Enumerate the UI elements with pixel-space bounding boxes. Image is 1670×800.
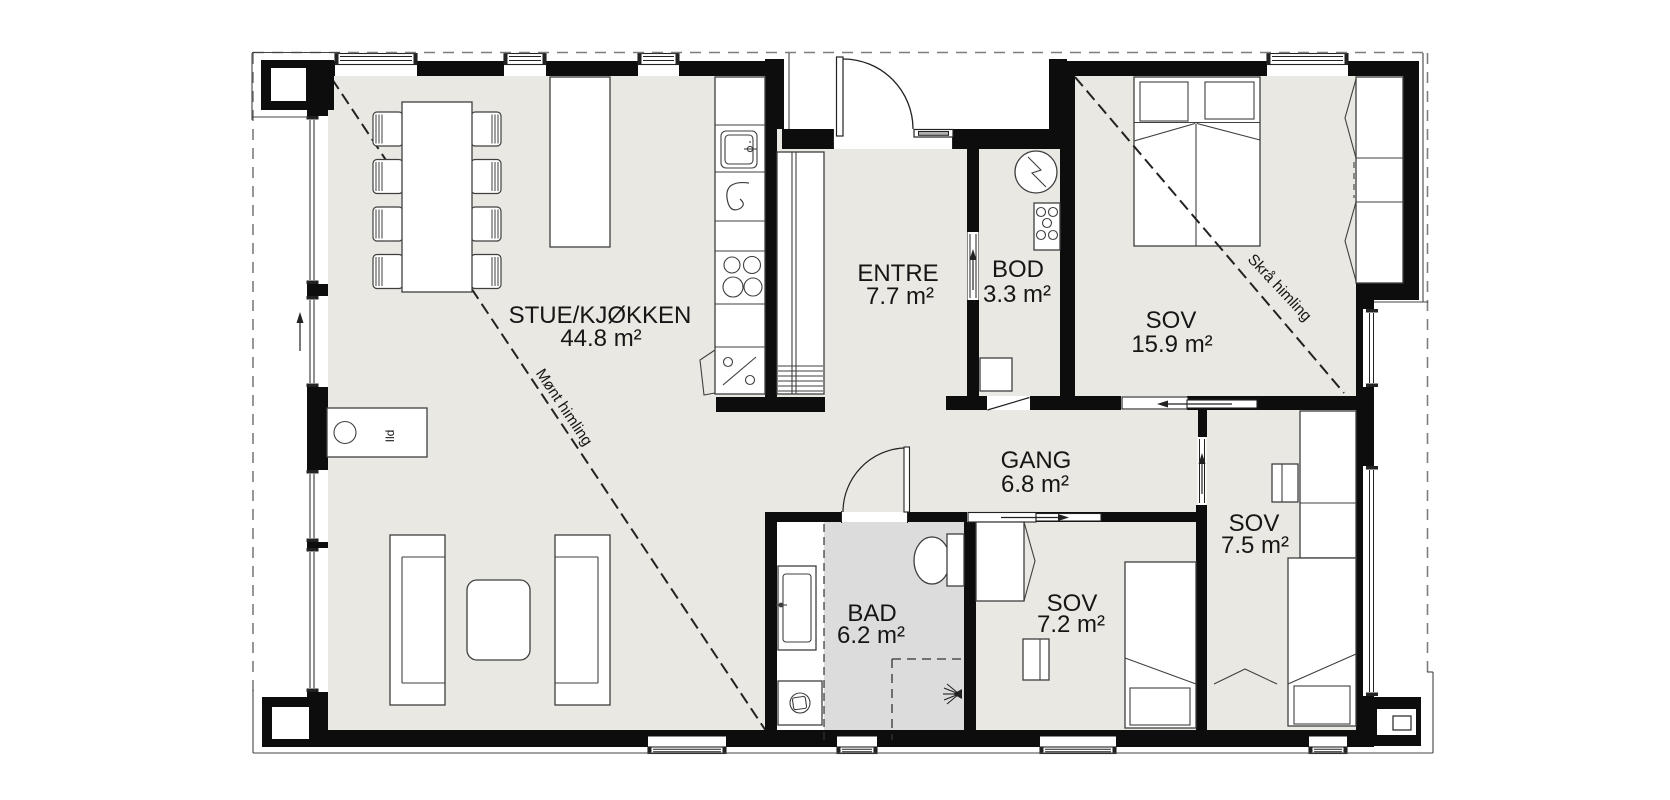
svg-text:7.5 m²: 7.5 m² bbox=[1221, 532, 1289, 559]
svg-text:SOV: SOV bbox=[1146, 307, 1197, 334]
svg-text:7.7 m²: 7.7 m² bbox=[866, 283, 934, 310]
svg-text:GANG: GANG bbox=[1001, 447, 1072, 474]
svg-text:44.8 m²: 44.8 m² bbox=[560, 325, 641, 352]
svg-text:15.9 m²: 15.9 m² bbox=[1131, 331, 1212, 358]
svg-text:Ild: Ild bbox=[383, 430, 397, 443]
svg-text:7.2 m²: 7.2 m² bbox=[1037, 611, 1105, 638]
svg-text:3.3 m²: 3.3 m² bbox=[983, 281, 1051, 308]
svg-text:BOD: BOD bbox=[992, 256, 1044, 283]
svg-text:6.2 m²: 6.2 m² bbox=[837, 622, 905, 649]
svg-text:6.8 m²: 6.8 m² bbox=[1001, 471, 1069, 498]
